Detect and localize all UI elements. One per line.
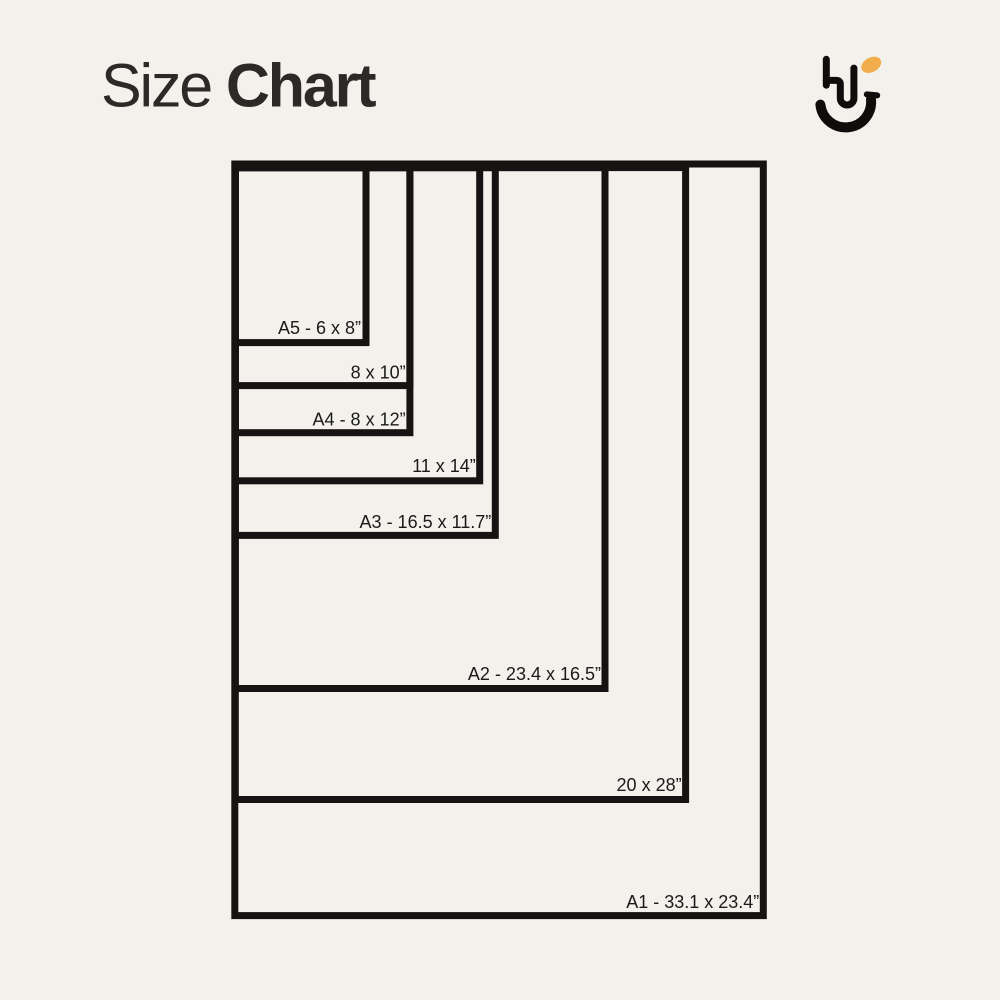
svg-text:A3 - 16.5 x 11.7”: A3 - 16.5 x 11.7”	[360, 512, 492, 532]
svg-text:11 x 14”: 11 x 14”	[412, 456, 476, 476]
svg-text:20 x 28”: 20 x 28”	[617, 775, 682, 795]
svg-text:Size Chart: Size Chart	[101, 52, 376, 120]
svg-text:A2 - 23.4 x 16.5”: A2 - 23.4 x 16.5”	[468, 664, 601, 684]
svg-text:A5 - 6 x 8”: A5 - 6 x 8”	[278, 318, 361, 338]
svg-text:A4 - 8 x 12”: A4 - 8 x 12”	[313, 409, 406, 429]
svg-text:8 x 10”: 8 x 10”	[351, 363, 406, 383]
svg-text:A1 - 33.1 x 23.4”: A1 - 33.1 x 23.4”	[626, 892, 759, 912]
